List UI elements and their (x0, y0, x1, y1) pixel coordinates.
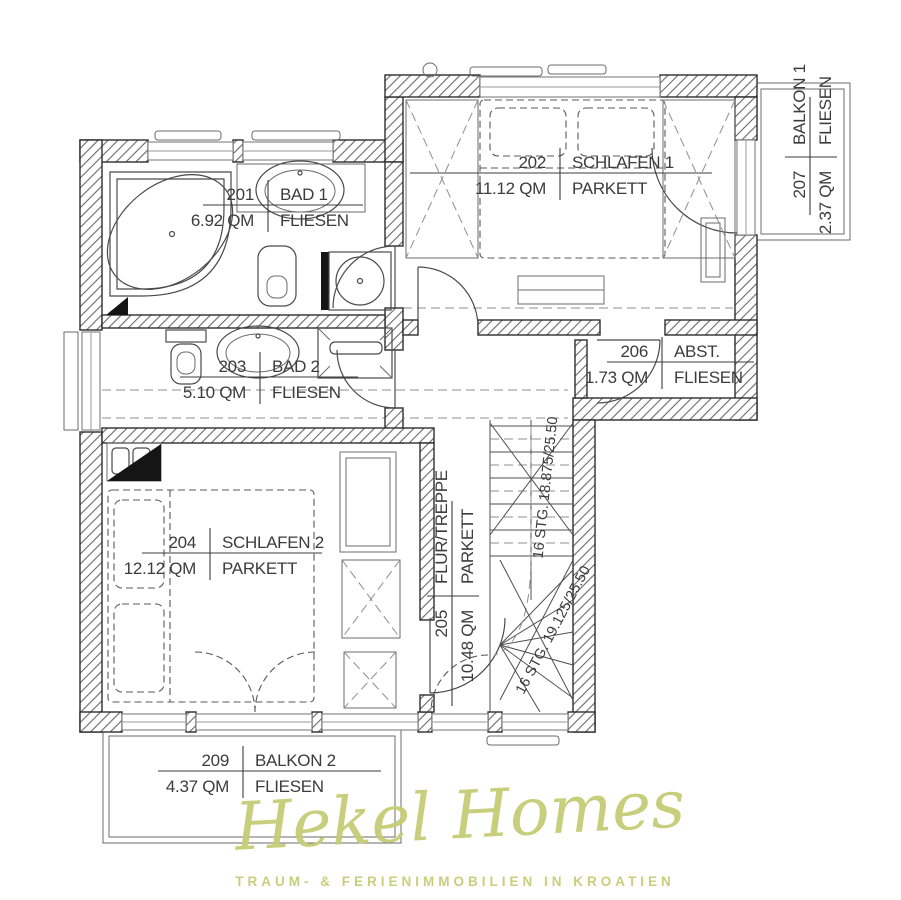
shower (329, 252, 391, 310)
french-door (196, 714, 312, 730)
svg-text:11.12 QM: 11.12 QM (475, 179, 546, 198)
svg-text:FLIESEN: FLIESEN (674, 368, 743, 387)
window (82, 332, 100, 430)
room-label-206: 206 ABST. 1.73 QM FLIESEN (585, 337, 754, 389)
svg-text:BALKON 1: BALKON 1 (790, 64, 809, 145)
door-schlafen1 (418, 267, 478, 327)
window (122, 714, 186, 730)
svg-text:SCHLAFEN 2: SCHLAFEN 2 (222, 533, 324, 552)
svg-text:ABST.: ABST. (674, 342, 720, 361)
svg-text:BAD 2: BAD 2 (272, 357, 320, 376)
double-bed (108, 490, 314, 702)
svg-text:209: 209 (202, 751, 229, 770)
svg-text:BALKON 2: BALKON 2 (255, 751, 336, 770)
svg-text:2.37 QM: 2.37 QM (816, 171, 835, 234)
dresser (340, 452, 396, 552)
svg-text:PARKETT: PARKETT (222, 559, 297, 578)
svg-text:PARKETT: PARKETT (572, 179, 647, 198)
svg-text:201: 201 (227, 185, 254, 204)
bedroom1-furniture (406, 100, 735, 304)
bathroom1-fixtures (85, 151, 391, 313)
svg-text:FLUR/TREPPE: FLUR/TREPPE (432, 470, 451, 584)
svg-text:4.37 QM: 4.37 QM (166, 777, 229, 796)
svg-text:FLIESEN: FLIESEN (816, 76, 835, 145)
corner-bathtub (110, 172, 231, 296)
svg-text:FLIESEN: FLIESEN (280, 211, 349, 230)
svg-text:12.12 QM: 12.12 QM (124, 559, 196, 578)
bedroom2-furniture (106, 297, 400, 708)
svg-text:204: 204 (169, 533, 196, 552)
shower-partition (321, 252, 329, 310)
door-bad1 (333, 246, 395, 308)
balcony-door-window (432, 714, 488, 730)
svg-text:1.73 QM: 1.73 QM (585, 368, 648, 387)
window (322, 714, 418, 730)
room-label-205: 205 FLUR/TREPPE 10.48 QM PARKETT (427, 470, 479, 706)
pillow (114, 604, 164, 692)
svg-text:5.10 QM: 5.10 QM (183, 383, 246, 402)
pillow (578, 108, 654, 156)
balcony-door-window (737, 140, 755, 235)
svg-text:SCHLAFEN 1: SCHLAFEN 1 (572, 153, 674, 172)
svg-text:206: 206 (621, 342, 648, 361)
window (243, 142, 333, 160)
watermark-tagline: TRAUM- & FERIENIMMOBILIEN IN KROATIEN (235, 874, 674, 889)
section-marker (106, 297, 128, 315)
svg-text:203: 203 (219, 357, 246, 376)
svg-text:202: 202 (519, 153, 546, 172)
svg-text:FLIESEN: FLIESEN (272, 383, 341, 402)
svg-text:PARKETT: PARKETT (458, 509, 477, 584)
room-label-204: 204 SCHLAFEN 2 12.12 QM PARKETT (124, 528, 324, 580)
toilet-tank (166, 330, 206, 342)
toilet (171, 344, 201, 384)
svg-text:BAD 1: BAD 1 (280, 185, 328, 204)
window (148, 142, 233, 160)
door-balcony2-french (195, 652, 315, 712)
svg-text:207: 207 (790, 171, 809, 198)
floor-plan-page: 16 STG. 18.875/25.50 16 STG. 19.125/25.5… (0, 0, 901, 900)
floor-plan: 16 STG. 18.875/25.50 16 STG. 19.125/25.5… (0, 0, 901, 900)
svg-text:6.92 QM: 6.92 QM (191, 211, 254, 230)
room-label-207: 207 BALKON 1 2.37 QM FLIESEN (785, 64, 837, 234)
stairs-upper-text: 16 STG. 18.875/25.50 (531, 416, 562, 560)
svg-text:10.48 QM: 10.48 QM (458, 610, 477, 682)
window (480, 77, 660, 97)
svg-text:205: 205 (432, 610, 451, 637)
window (502, 714, 568, 730)
door-bad2 (337, 350, 395, 408)
pillow (490, 108, 566, 156)
